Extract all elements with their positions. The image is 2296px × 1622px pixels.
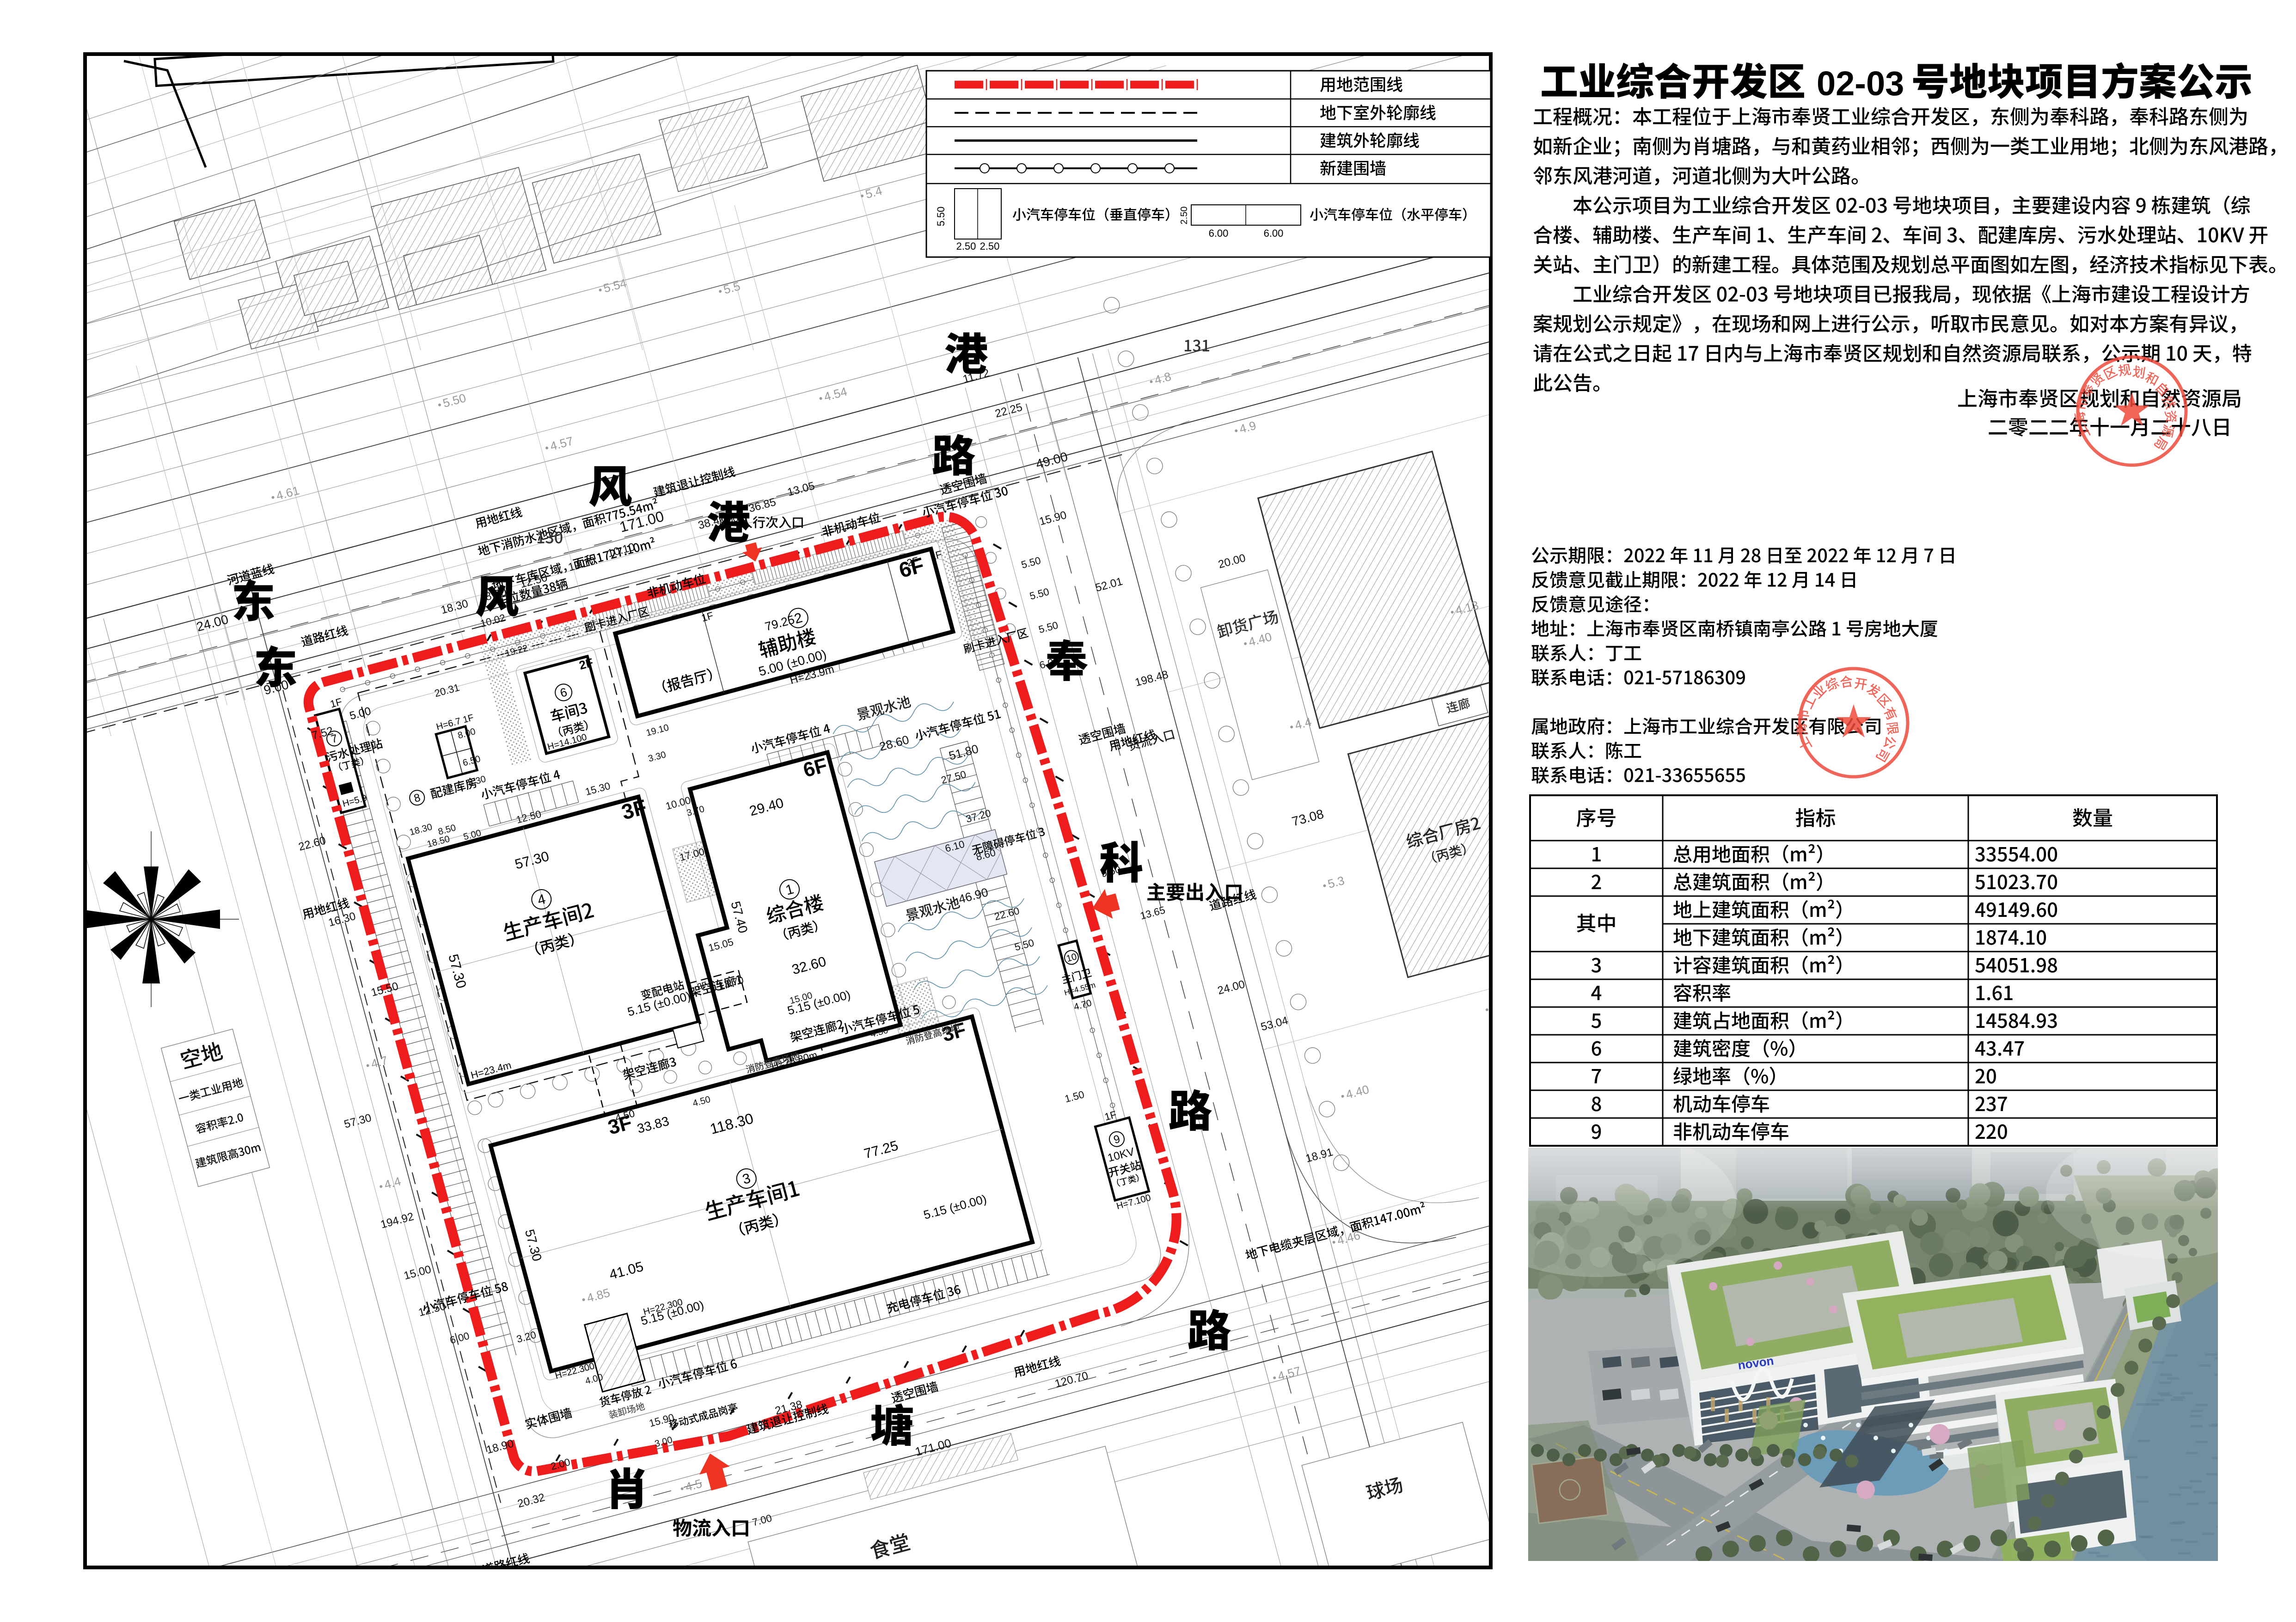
svg-text:2.50: 2.50: [980, 240, 1000, 252]
svg-text:2.50: 2.50: [1179, 207, 1189, 225]
svg-text:6.00: 6.00: [1264, 227, 1284, 239]
svg-text:02-03: 02-03: [1817, 64, 1904, 103]
svg-text:6.00: 6.00: [1209, 227, 1229, 239]
svg-text:5.50: 5.50: [935, 207, 947, 227]
svg-text:2.50: 2.50: [956, 240, 976, 252]
